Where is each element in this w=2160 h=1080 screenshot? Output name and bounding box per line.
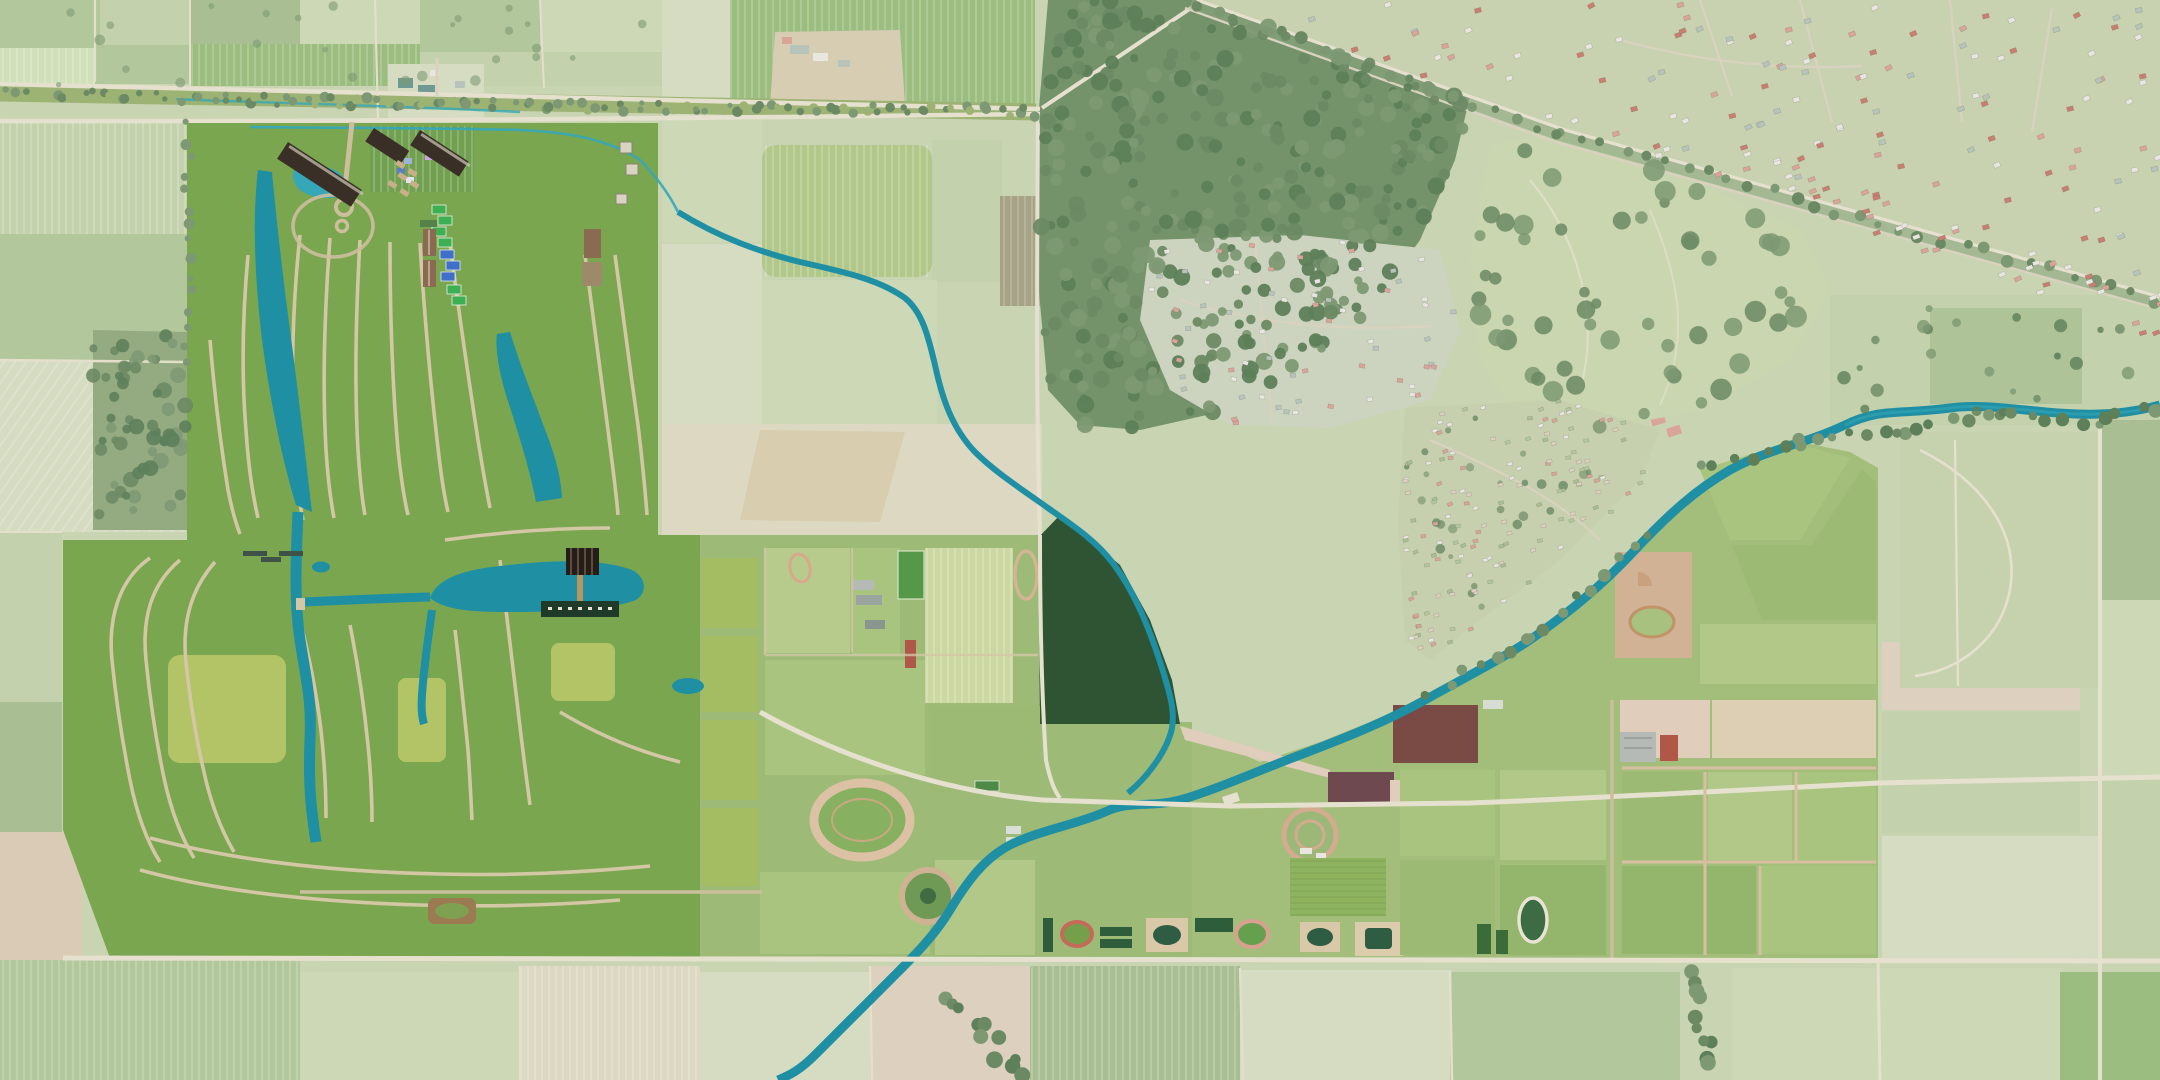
farmstead <box>770 30 905 106</box>
event-lawn <box>551 643 615 701</box>
aerial-masterplan-view: Aerial photo composite: holiday-park and… <box>0 0 2160 1080</box>
camping-grid-east <box>582 229 602 286</box>
white-oval-track <box>1519 898 1547 942</box>
equestrian-oval <box>814 783 910 857</box>
maroon-field <box>1328 772 1394 802</box>
small-pond <box>672 678 704 694</box>
small-pond <box>312 562 330 573</box>
brown-sports-field <box>428 898 476 924</box>
pier <box>577 575 583 602</box>
running-track-red <box>1062 922 1092 946</box>
sports-pitch <box>898 551 924 599</box>
